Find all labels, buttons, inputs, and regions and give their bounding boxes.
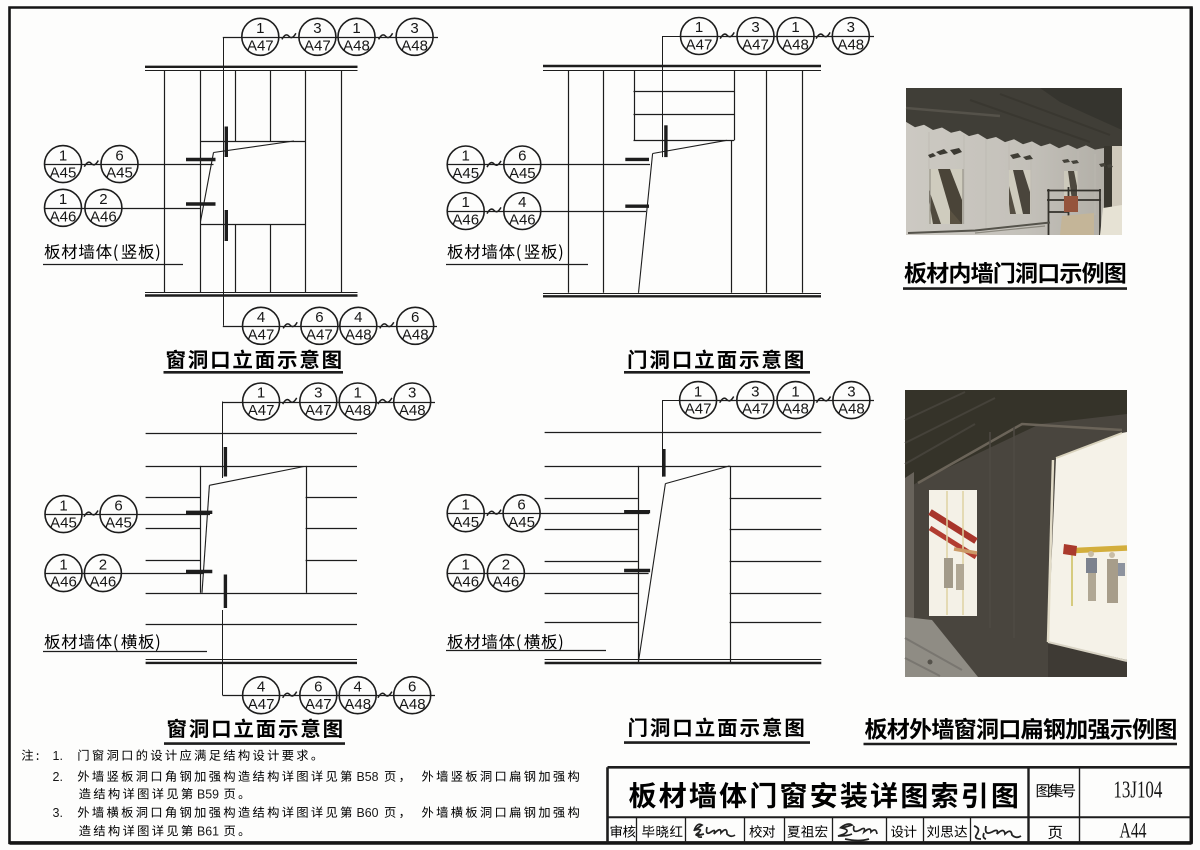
svg-text:2: 2 — [99, 556, 107, 573]
svg-text:13J104: 13J104 — [1113, 778, 1162, 804]
svg-text:B61: B61 — [197, 824, 219, 838]
svg-text:A47: A47 — [305, 696, 332, 713]
svg-text:3: 3 — [410, 20, 418, 37]
svg-text:A48: A48 — [838, 401, 865, 418]
svg-text:A47: A47 — [686, 37, 713, 54]
svg-text:A46: A46 — [509, 212, 536, 229]
svg-text:A46: A46 — [452, 212, 479, 229]
svg-text:2: 2 — [502, 556, 510, 573]
svg-text:1: 1 — [462, 496, 470, 513]
svg-text:1: 1 — [462, 556, 470, 573]
svg-text:1: 1 — [59, 191, 67, 208]
svg-text:A47: A47 — [742, 37, 769, 54]
svg-text:B60: B60 — [357, 806, 379, 820]
svg-text:3: 3 — [408, 385, 416, 402]
svg-text:A45: A45 — [452, 514, 479, 531]
svg-text:1: 1 — [59, 497, 67, 514]
svg-text:A46: A46 — [452, 574, 479, 591]
svg-text:1: 1 — [791, 383, 799, 400]
svg-text:B58: B58 — [357, 770, 379, 784]
svg-text:6: 6 — [114, 497, 122, 514]
svg-text:3: 3 — [314, 385, 322, 402]
svg-text:1: 1 — [791, 19, 799, 36]
svg-text:4: 4 — [257, 678, 265, 695]
svg-text:A47: A47 — [248, 696, 275, 713]
svg-text:A47: A47 — [304, 37, 331, 54]
svg-text:A45: A45 — [50, 515, 77, 532]
svg-text:A46: A46 — [493, 574, 520, 591]
svg-text:1: 1 — [695, 19, 703, 36]
svg-text:3: 3 — [847, 19, 855, 36]
svg-text:A45: A45 — [452, 165, 479, 182]
svg-text:4: 4 — [257, 309, 265, 326]
svg-text:1: 1 — [59, 556, 67, 573]
svg-text:A46: A46 — [50, 208, 77, 225]
svg-text:6: 6 — [517, 496, 525, 513]
svg-text:6: 6 — [115, 147, 123, 164]
svg-text:A45: A45 — [106, 165, 133, 182]
svg-text:A46: A46 — [90, 574, 117, 591]
svg-text:A48: A48 — [782, 37, 809, 54]
svg-text:1.: 1. — [53, 749, 63, 763]
svg-text:4: 4 — [518, 194, 526, 211]
svg-text:A48: A48 — [345, 326, 372, 343]
svg-text:A48: A48 — [401, 37, 428, 54]
svg-text:6: 6 — [408, 678, 416, 695]
svg-text:1: 1 — [257, 385, 265, 402]
svg-text:A48: A48 — [402, 326, 429, 343]
svg-text:3: 3 — [751, 383, 759, 400]
svg-text:1: 1 — [256, 20, 264, 37]
svg-text:3: 3 — [313, 20, 321, 37]
svg-text:A44: A44 — [1120, 817, 1147, 842]
svg-text:1: 1 — [462, 148, 470, 165]
svg-text:6: 6 — [518, 148, 526, 165]
svg-text:6: 6 — [315, 309, 323, 326]
svg-text:A48: A48 — [344, 696, 371, 713]
svg-text:B59: B59 — [197, 787, 219, 801]
svg-text:A46: A46 — [50, 574, 77, 591]
svg-text:A47: A47 — [742, 401, 769, 418]
svg-text:1: 1 — [462, 194, 470, 211]
svg-text:4: 4 — [354, 678, 362, 695]
svg-text:A47: A47 — [248, 326, 275, 343]
svg-text:A48: A48 — [782, 401, 809, 418]
svg-text:2: 2 — [99, 191, 107, 208]
svg-text:A47: A47 — [248, 402, 275, 419]
svg-text:A48: A48 — [344, 402, 371, 419]
svg-text:A45: A45 — [509, 165, 536, 182]
svg-text:A48: A48 — [399, 696, 426, 713]
svg-text:1: 1 — [694, 383, 702, 400]
svg-text:3: 3 — [751, 19, 759, 36]
svg-text:2.: 2. — [53, 770, 63, 784]
svg-text:1: 1 — [59, 147, 67, 164]
svg-text:6: 6 — [411, 309, 419, 326]
svg-text:A45: A45 — [105, 515, 132, 532]
svg-text:A47: A47 — [685, 401, 712, 418]
svg-text:A48: A48 — [343, 37, 370, 54]
svg-text:A47: A47 — [247, 37, 274, 54]
svg-text:A48: A48 — [399, 402, 426, 419]
svg-text:4: 4 — [354, 309, 362, 326]
svg-text:A45: A45 — [50, 165, 77, 182]
svg-text:A48: A48 — [837, 37, 864, 54]
svg-text:1: 1 — [352, 20, 360, 37]
svg-text:A47: A47 — [305, 402, 332, 419]
svg-text:A45: A45 — [508, 514, 535, 531]
svg-text:A47: A47 — [306, 326, 333, 343]
svg-text:A46: A46 — [90, 208, 117, 225]
svg-text:6: 6 — [314, 678, 322, 695]
svg-text:3.: 3. — [53, 806, 63, 820]
svg-text:3: 3 — [847, 383, 855, 400]
svg-text:1: 1 — [354, 385, 362, 402]
